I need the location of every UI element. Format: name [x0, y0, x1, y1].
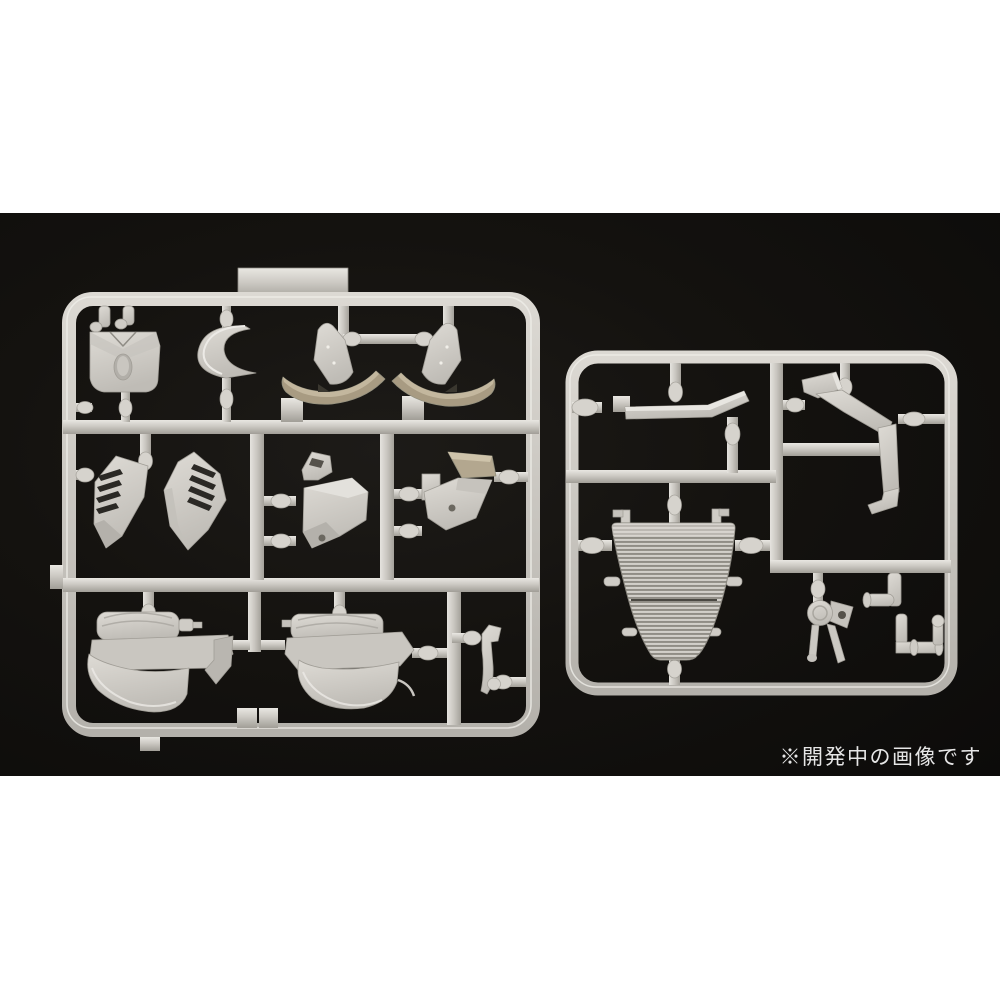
product-photo — [0, 213, 1000, 776]
screenshot-root: ※開発中の画像です — [0, 0, 1000, 1000]
sprue-photo-illustration — [0, 213, 1000, 776]
photo-caption: ※開発中の画像です — [780, 745, 983, 770]
